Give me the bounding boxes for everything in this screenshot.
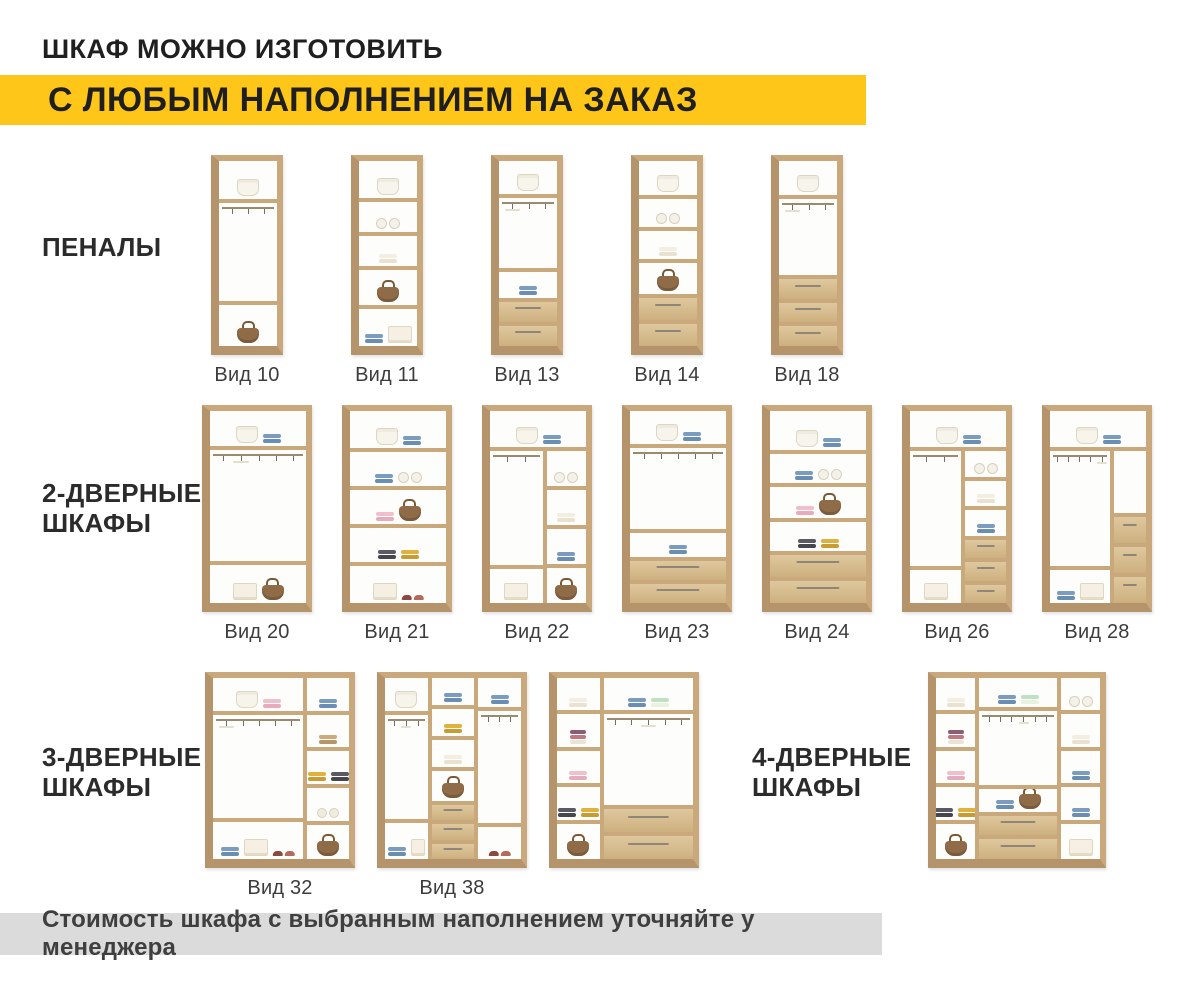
jeans-item	[444, 693, 462, 702]
drawer-front	[499, 298, 557, 322]
wardrobe-body	[622, 405, 732, 612]
hanger-hook	[275, 721, 276, 726]
hanger-hook	[1000, 717, 1001, 722]
shelf-compartment	[1061, 783, 1100, 819]
drawer-handle	[443, 848, 462, 850]
jeans-item	[1103, 435, 1121, 444]
foldedWhite-item	[977, 494, 995, 503]
foldedPink-item	[263, 699, 281, 708]
hanger-hook	[681, 720, 682, 725]
wardrobe-vid-28: Вид 28	[1042, 405, 1152, 644]
shelf-compartment	[350, 562, 446, 603]
hanging-section	[910, 451, 961, 566]
handbag-item	[945, 834, 967, 856]
hanger-hook	[825, 205, 826, 210]
drawer-handle	[976, 545, 994, 547]
garment	[485, 717, 493, 722]
shelf-compartment	[359, 161, 417, 198]
storage-box-item	[504, 583, 528, 600]
jeans-item	[375, 474, 393, 483]
hanging-rod	[493, 455, 540, 457]
garment	[919, 457, 934, 462]
shelf-compartment	[910, 411, 1006, 451]
drawer-front	[770, 551, 866, 577]
hanging-section	[979, 707, 1057, 784]
hanging-rod	[633, 452, 723, 454]
basket-item	[936, 427, 958, 444]
wardrobe-body	[771, 155, 843, 355]
shelf-compartment	[770, 483, 866, 518]
footer-note-text: Стоимость шкафа с выбранным наполнением …	[42, 906, 882, 962]
jeans-item	[823, 438, 841, 447]
hanger-hook	[809, 205, 810, 210]
hanger-hook	[661, 454, 662, 459]
garment	[1043, 717, 1051, 722]
hanger-hook	[232, 209, 233, 214]
shelf-compartment	[936, 678, 975, 710]
garment	[785, 205, 800, 212]
wardrobe-body	[549, 672, 699, 868]
drawer-front	[1114, 513, 1146, 543]
hanger-hook	[276, 456, 277, 461]
storage-box-item	[411, 839, 425, 856]
drawer-front	[432, 801, 475, 820]
garment	[1053, 457, 1061, 462]
shelf-compartment	[557, 710, 600, 746]
foldedWhite-item	[557, 513, 575, 522]
garment	[1019, 717, 1029, 724]
jeans-item	[519, 286, 537, 295]
wardrobe-vid-14: Вид 14	[631, 155, 703, 387]
shelf-compartment	[639, 161, 697, 195]
shelf-compartment	[779, 161, 837, 195]
hanging-section	[630, 448, 726, 529]
rolls-item	[818, 469, 842, 480]
hanger-hook	[631, 720, 632, 725]
storage-box-item	[1080, 583, 1104, 600]
garment	[252, 456, 266, 461]
drawer-handle	[795, 285, 821, 287]
hanging-section	[490, 451, 543, 565]
garment	[637, 454, 651, 459]
wardrobe-body	[377, 672, 527, 868]
garment	[688, 454, 702, 459]
drawer-front	[1114, 573, 1146, 603]
wardrobe-body	[482, 405, 592, 612]
hanger-hook	[1090, 457, 1091, 462]
shelf-compartment	[936, 783, 975, 819]
drawer-front	[432, 820, 475, 839]
drawer-front	[979, 835, 1057, 859]
row-label-4-door: 4-ДВЕРНЫЕ ШКАФЫ	[752, 742, 911, 802]
shelf-compartment	[630, 529, 726, 557]
shelf-compartment	[547, 486, 586, 525]
garment	[390, 721, 398, 726]
handbag-item	[399, 499, 421, 521]
shelf-compartment	[210, 411, 306, 450]
stackYellow-item	[581, 808, 599, 817]
wardrobe-body	[928, 672, 1106, 868]
drawer-handle	[443, 828, 462, 830]
stackYellow-item	[401, 550, 419, 559]
jeans-item	[263, 434, 281, 443]
wardrobe-vid-20: Вид 20	[202, 405, 312, 644]
hanger-hook	[293, 456, 294, 461]
rolls-item	[1069, 696, 1093, 707]
drawer-handle	[628, 816, 668, 818]
wardrobe-view-label: Вид 24	[784, 621, 849, 644]
shelf-compartment	[965, 451, 1006, 477]
drawer-handle	[656, 566, 699, 568]
handbag-item	[237, 321, 259, 343]
garment	[496, 717, 504, 722]
rolls-item	[398, 472, 422, 483]
hanger-hook	[223, 456, 224, 461]
hanger-hook	[512, 204, 513, 209]
basket-item	[797, 175, 819, 192]
hanger-hook	[989, 717, 990, 722]
garment	[705, 454, 719, 459]
wardrobe-view-label: Вид 10	[214, 364, 279, 387]
foldedPink-item	[376, 512, 394, 521]
shelf-compartment	[770, 518, 866, 551]
basket-item	[236, 691, 258, 708]
drawer-front	[965, 536, 1006, 558]
foldedBrown-item	[319, 735, 337, 744]
drawer-handle	[515, 307, 541, 309]
hanger-hook	[243, 721, 244, 726]
basket-item	[377, 178, 399, 195]
shelf-compartment	[350, 524, 446, 561]
handbag-item	[262, 578, 284, 600]
subtitle-text: С ЛЮБЫМ НАПОЛНЕНИЕМ НА ЗАКАЗ	[48, 81, 698, 120]
drawer-handle	[628, 843, 668, 845]
foldedWhite-item	[947, 698, 965, 707]
hanger-hook	[510, 717, 511, 722]
garment	[500, 457, 515, 462]
stackDark-item	[558, 808, 576, 817]
wardrobe-body	[1042, 405, 1152, 612]
shelf-compartment	[557, 820, 600, 859]
garment	[237, 721, 250, 726]
hanger-hook	[1068, 457, 1069, 462]
shelf-compartment	[359, 266, 417, 305]
drawer-handle	[976, 567, 994, 569]
shelf-compartment	[1050, 566, 1110, 603]
drawer-front	[604, 805, 693, 832]
drawer-handle	[1123, 554, 1137, 556]
drawer-front	[965, 581, 1006, 603]
drawer-front	[779, 322, 837, 346]
hanging-rod	[222, 207, 274, 209]
wardrobe-body	[211, 155, 283, 355]
basket-item	[516, 427, 538, 444]
hanging-rod	[481, 715, 518, 717]
drawer-handle	[795, 308, 821, 310]
garment	[659, 720, 672, 725]
row-label-3-door: 3-ДВЕРНЫЕ ШКАФЫ	[42, 742, 201, 802]
jeans-item	[998, 695, 1016, 704]
jeans-item	[319, 699, 337, 708]
foldedPink-item	[947, 771, 965, 780]
garment	[233, 456, 249, 463]
wardrobe-body	[351, 155, 423, 355]
wardrobe-view-label: Вид 11	[355, 364, 419, 387]
storage-box-item	[244, 839, 268, 856]
garment	[401, 721, 411, 728]
wardrobe-vid-18: Вид 18	[771, 155, 843, 387]
rolls-item	[974, 463, 998, 474]
shelf-compartment	[639, 259, 697, 294]
shelf-compartment	[1061, 747, 1100, 783]
hanger-hook	[1035, 717, 1036, 722]
shelf-compartment	[385, 678, 428, 711]
wardrobe-vid-22: Вид 22	[482, 405, 592, 644]
hanger-hook	[259, 721, 260, 726]
garment	[937, 457, 952, 462]
hanger-hook	[944, 457, 945, 462]
glasses-item	[317, 808, 339, 818]
rolls-item	[376, 218, 400, 229]
foldedWhite-item	[1072, 735, 1090, 744]
garment	[1064, 457, 1072, 462]
garment	[226, 209, 239, 214]
foldedWhite-item	[379, 254, 397, 263]
shelf-compartment	[478, 823, 521, 859]
wardrobe-view-label: Вид 18	[774, 364, 839, 387]
garment	[609, 720, 622, 725]
jeans-item	[683, 432, 701, 441]
basket-item	[395, 691, 417, 708]
shelf-compartment	[557, 747, 600, 783]
shelf-compartment	[213, 678, 303, 711]
garment	[671, 454, 685, 459]
drawer-handle	[1123, 524, 1137, 526]
shelf-compartment	[432, 678, 475, 705]
shelf-compartment	[350, 486, 446, 525]
drawer-handle	[1123, 584, 1137, 586]
wardrobe-view-label: Вид 22	[504, 621, 569, 644]
shelf-compartment	[350, 411, 446, 448]
wardrobe-body	[205, 672, 355, 868]
foldedWhite-item	[569, 698, 587, 707]
wardrobe-view-label: Вид 28	[1064, 621, 1129, 644]
shelf-compartment	[639, 227, 697, 259]
drawer-handle	[515, 331, 541, 333]
greenStack-item	[651, 698, 669, 707]
handbag-item	[819, 493, 841, 515]
basket-item	[656, 424, 678, 441]
shelf-compartment	[910, 566, 961, 603]
hanger-hook	[418, 721, 419, 726]
hanging-section	[499, 194, 557, 268]
wardrobe-vid-26: Вид 26	[902, 405, 1012, 644]
hanger-hook	[394, 721, 395, 726]
jeans-item	[1057, 591, 1075, 600]
hanger-hook	[926, 457, 927, 462]
stackDark-item	[798, 539, 816, 548]
drawer-handle	[976, 590, 994, 592]
shelf-compartment	[639, 195, 697, 227]
shelf-compartment	[936, 747, 975, 783]
shelf-compartment	[547, 564, 586, 603]
hanger-hook	[1011, 717, 1012, 722]
foldedWhite-item	[659, 247, 677, 256]
garment	[219, 721, 234, 728]
wardrobe-three-door-3	[549, 672, 699, 868]
wardrobe-view-label: Вид 14	[634, 364, 699, 387]
basket-item	[657, 175, 679, 192]
drawer-front	[639, 294, 697, 320]
storage-box-item	[388, 326, 412, 343]
hanging-rod	[502, 202, 554, 204]
hanging-rod	[213, 454, 303, 456]
hanging-section	[779, 195, 837, 275]
shelf-compartment	[350, 448, 446, 485]
stackColor-item	[948, 730, 964, 744]
shelf-compartment	[307, 678, 349, 711]
shelf-compartment	[1050, 411, 1146, 451]
wardrobe-vid-21: Вид 21	[342, 405, 452, 644]
shelf-compartment	[359, 232, 417, 266]
shelf-compartment	[979, 785, 1057, 812]
shelf-compartment	[630, 411, 726, 448]
drawer-handle	[655, 304, 681, 306]
hanger-hook	[665, 720, 666, 725]
jeans-item	[543, 435, 561, 444]
jeans-item	[795, 471, 813, 480]
hanger-hook	[615, 720, 616, 725]
row-label-penaly: ПЕНАЛЫ	[42, 232, 161, 262]
storage-box-item	[924, 583, 948, 600]
stackColor-item	[570, 730, 586, 744]
shoes-item	[489, 851, 511, 856]
wardrobe-vid-32: Вид 32	[205, 672, 355, 900]
hanger-hook	[695, 454, 696, 459]
shelf-compartment	[385, 819, 428, 859]
hanger-hook	[248, 209, 249, 214]
hanging-section	[213, 711, 303, 818]
drawer-front	[779, 275, 837, 299]
drawer-front	[604, 832, 693, 859]
stackYellow-item	[958, 808, 975, 817]
shelf-compartment	[499, 268, 557, 298]
drawer-front	[770, 577, 866, 603]
garment	[523, 204, 536, 209]
stackYellow-item	[444, 724, 462, 733]
hanging-section	[210, 450, 306, 561]
shelf-compartment	[432, 705, 475, 736]
drawer-front	[630, 557, 726, 580]
shelf-compartment	[432, 767, 475, 801]
garment	[518, 457, 533, 462]
garment	[803, 205, 816, 210]
shelf-compartment	[219, 301, 277, 346]
drawer-front	[779, 299, 837, 323]
shelf-compartment	[307, 821, 349, 859]
drawer-front	[499, 322, 557, 346]
wardrobe-view-label: Вид 20	[224, 621, 289, 644]
jeans-item	[365, 334, 383, 343]
shelf-compartment	[219, 161, 277, 199]
jeans-item	[628, 698, 646, 707]
wardrobe-body	[762, 405, 872, 612]
footer-note: Стоимость шкафа с выбранным наполнением …	[0, 913, 882, 955]
storage-box-item	[1069, 839, 1093, 856]
wardrobe-vid-24: Вид 24	[762, 405, 872, 644]
three-door-wardrobes-row: Вид 32Вид 38	[205, 672, 699, 900]
shelf-compartment	[359, 198, 417, 232]
garment	[654, 454, 668, 459]
storage-box-item	[373, 583, 397, 600]
wardrobe-body	[202, 405, 312, 612]
garment	[675, 720, 688, 725]
wardrobe-vid-38: Вид 38	[377, 672, 527, 900]
wardrobe-vid-11: Вид 11	[351, 155, 423, 387]
hanger-hook	[291, 721, 292, 726]
wardrobe-view-label: Вид 32	[247, 877, 312, 900]
handbag-item	[1019, 787, 1041, 809]
basket-item	[1076, 427, 1098, 444]
hanging-rod	[216, 719, 300, 721]
shoes-item	[402, 595, 424, 600]
hanger-hook	[545, 204, 546, 209]
wardrobe-body	[342, 405, 452, 612]
garment	[216, 456, 230, 461]
jeans-item	[491, 695, 509, 704]
drawer-handle	[796, 587, 839, 589]
handbag-item	[567, 834, 589, 856]
drawer-front	[639, 320, 697, 346]
hanger-hook	[507, 457, 508, 462]
stackDark-item	[378, 550, 396, 559]
shelf-compartment	[936, 820, 975, 859]
wardrobe-view-label: Вид 38	[419, 877, 484, 900]
shelf-compartment	[210, 561, 306, 603]
jeans-item	[403, 436, 421, 445]
drawer-front	[630, 580, 726, 603]
shelf-compartment	[547, 525, 586, 564]
hanging-rod	[982, 715, 1054, 717]
foldedPink-item	[796, 506, 814, 515]
hanging-section	[385, 711, 428, 819]
jeans-item	[388, 847, 406, 856]
shelf-compartment	[936, 710, 975, 746]
garment	[285, 721, 298, 726]
garment	[1086, 457, 1094, 462]
shelf-compartment	[1061, 710, 1100, 746]
shelf-compartment	[965, 506, 1006, 536]
basket-item	[376, 428, 398, 445]
garment	[625, 720, 638, 725]
row-label-2-door: 2-ДВЕРНЫЕ ШКАФЫ	[42, 478, 201, 538]
shelf-compartment	[770, 411, 866, 454]
hanger-hook	[259, 456, 260, 461]
hanging-rod	[388, 719, 425, 721]
jeans-item	[1072, 808, 1090, 817]
hanger-hook	[1079, 457, 1080, 462]
stackDark-item	[331, 772, 349, 781]
jeans-item	[221, 847, 239, 856]
jeans-item	[1072, 771, 1090, 780]
wardrobe-vid-10: Вид 10	[211, 155, 283, 387]
hanger-hook	[712, 454, 713, 459]
garment	[1032, 717, 1040, 722]
shelf-compartment	[432, 736, 475, 767]
drawer-handle	[656, 589, 699, 591]
garment	[253, 721, 266, 726]
shelf-compartment	[490, 565, 543, 603]
